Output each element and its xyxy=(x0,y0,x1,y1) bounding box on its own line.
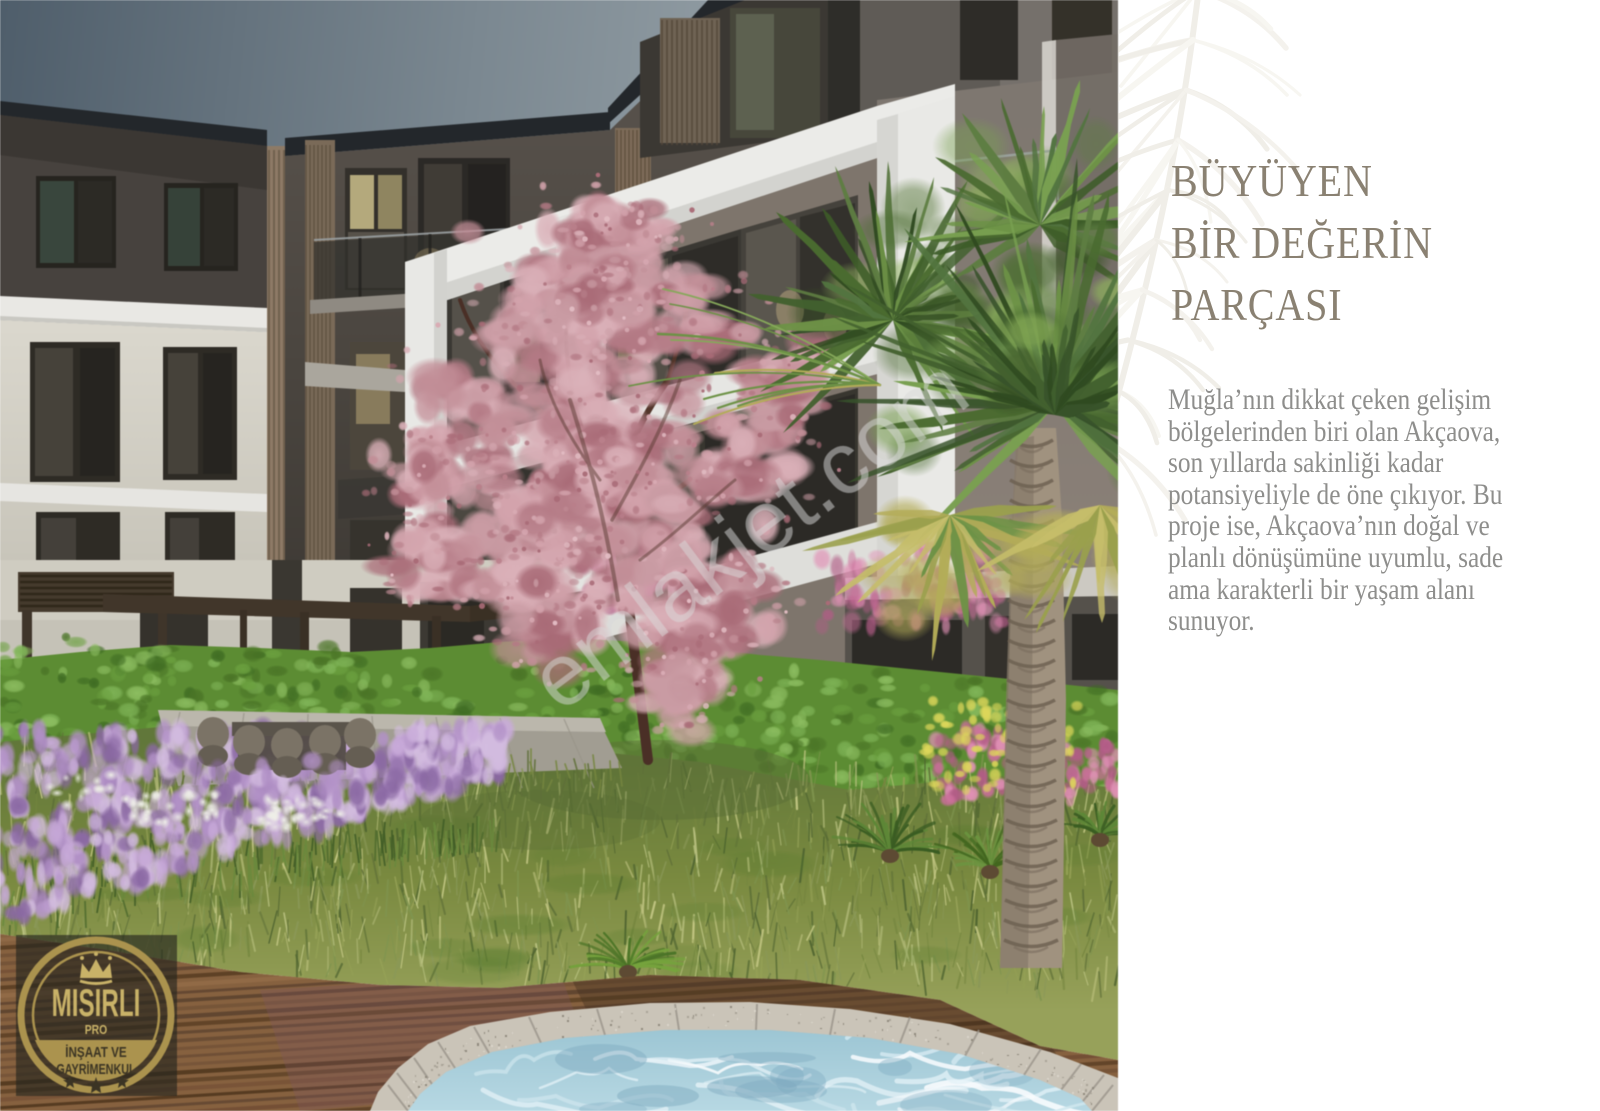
svg-text:MISIRLI: MISIRLI xyxy=(52,981,141,1024)
svg-text:GAYRİMENKUL: GAYRİMENKUL xyxy=(56,1060,135,1077)
svg-text:İNŞAAT VE: İNŞAAT VE xyxy=(65,1044,127,1061)
svg-text:PRO: PRO xyxy=(85,1023,108,1037)
